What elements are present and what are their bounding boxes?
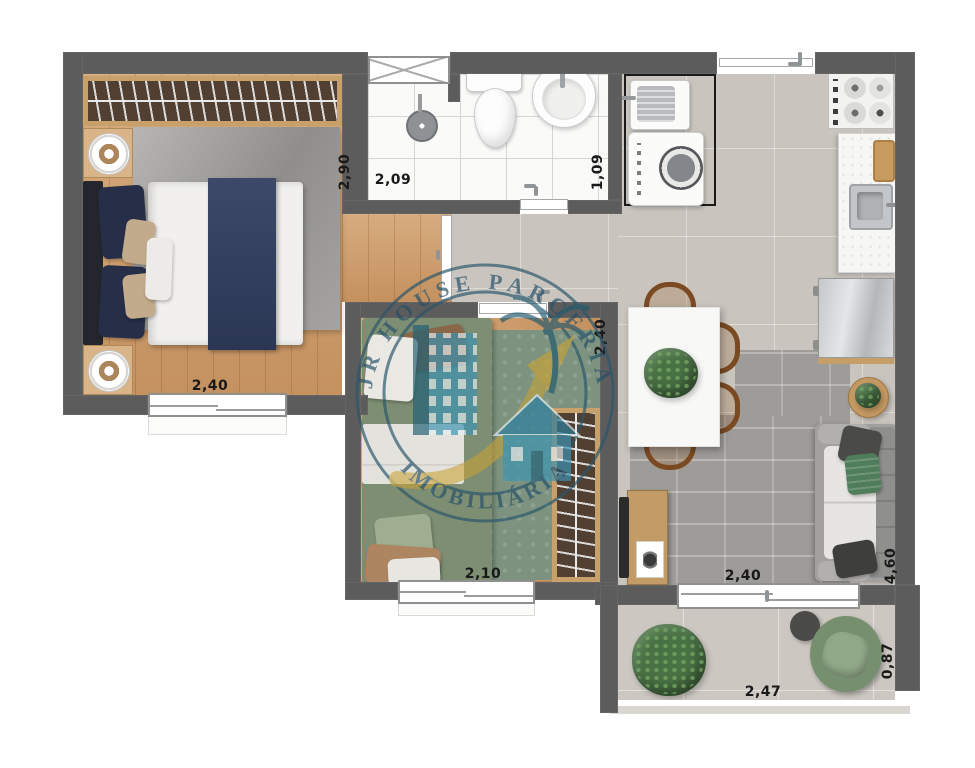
balcony-railing-bottom <box>614 700 896 704</box>
armchair-cushion <box>818 628 874 682</box>
sliding-door-pane2 <box>767 599 858 601</box>
wall-top-b <box>450 52 717 74</box>
kitchen-sink <box>849 184 893 230</box>
cooktop-knobs <box>833 79 838 125</box>
bed2-window-pane <box>400 591 466 593</box>
building-icon <box>413 325 477 435</box>
sofa-pillow-green <box>844 452 882 495</box>
balcony-armchair <box>810 616 882 692</box>
cooktop <box>828 72 894 129</box>
fridge-hinge-bottom <box>813 340 819 350</box>
dim-bedroom2-width: 2,10 <box>458 566 508 582</box>
realty-watermark-logo: JR HOUSE PARCERIA IMOBILIÁRIA <box>335 243 635 543</box>
dim-bathroom-depth: 1,09 <box>590 152 606 192</box>
bed2-window <box>398 580 535 604</box>
wall-left <box>63 52 83 415</box>
lamp-bottom <box>88 350 130 392</box>
sofa-pillow-dark-bottom <box>831 539 878 580</box>
burner-3 <box>844 102 866 124</box>
laundry-faucet <box>620 96 636 100</box>
laundry-tank <box>630 80 690 130</box>
wall-bath-bottom-a <box>342 200 520 214</box>
washer-door <box>659 146 703 190</box>
balcony-outer-shadow <box>610 706 910 714</box>
laundry-tank-basin <box>637 86 675 122</box>
washing-machine <box>628 132 704 206</box>
kitchen-sink-basin <box>857 192 883 220</box>
wall-right <box>895 52 915 585</box>
floor-plan: 2,40 2,90 2,09 1,09 2,40 2,10 2,40 4,60 … <box>0 0 975 768</box>
balcony-plant <box>632 624 706 696</box>
bathroom-door-handle-icon <box>524 184 542 198</box>
dim-bathroom-width: 2,09 <box>370 172 416 188</box>
bathroom-window-cross1 <box>368 58 450 84</box>
burner-1 <box>844 77 866 99</box>
bed1-window <box>148 393 287 417</box>
wall-living-bottom-b <box>860 585 895 605</box>
wall-bed1-bottom-a <box>63 395 148 415</box>
bed2-window-pane2 <box>464 595 533 597</box>
wall-balcony-right <box>895 585 920 691</box>
burner-4 <box>869 102 891 124</box>
wall-balcony-left <box>600 585 618 713</box>
cutting-board <box>873 140 895 182</box>
entry-door-handle-icon <box>788 52 808 70</box>
rack-picture-frame <box>636 541 664 578</box>
dining-centerpiece-plant <box>644 348 698 398</box>
fridge-base-shelf <box>818 358 894 364</box>
bed1-pillow-white <box>145 238 173 301</box>
dim-bedroom1-width: 2,40 <box>185 378 235 394</box>
watermark-arc-top-text: JR HOUSE PARCERIA <box>352 269 619 391</box>
shower-head-icon <box>406 110 438 142</box>
picture-art <box>643 551 657 569</box>
sliding-door-pane <box>681 593 773 595</box>
wall-bath-bottom-b <box>568 200 622 214</box>
wardrobe-rail <box>88 100 337 102</box>
bedroom1-wardrobe <box>83 76 342 126</box>
wall-bed1-bath <box>342 74 368 214</box>
dim-bedroom1-depth: 2,90 <box>337 152 353 192</box>
bathroom-window-cross2 <box>368 56 450 82</box>
bathroom-door-leaf <box>520 199 568 210</box>
washer-controls <box>637 143 641 195</box>
fridge-hinge-top <box>813 286 819 296</box>
dim-living-width: 2,40 <box>715 568 771 584</box>
side-table-plant <box>855 383 881 408</box>
dim-living-depth: 4,60 <box>883 546 899 586</box>
bed1-window-pane2 <box>216 409 285 411</box>
dim-balcony-depth: 0,87 <box>880 641 896 681</box>
fridge <box>818 278 894 358</box>
shower-arm <box>418 94 422 112</box>
dim-balcony-width: 2,47 <box>735 684 791 700</box>
wall-bath-laundry <box>608 74 622 200</box>
lamp-top <box>88 133 130 175</box>
sliding-door-handle <box>765 590 769 602</box>
bed1-window-pane <box>150 405 218 407</box>
balcony-sliding-door <box>677 583 860 609</box>
bed1-runner <box>208 178 276 350</box>
wall-top-a <box>63 52 368 74</box>
wall-bed2-bottom-a <box>345 582 398 600</box>
bathroom-window <box>368 56 450 84</box>
bed1-window-sill <box>148 415 287 435</box>
burner-2 <box>869 77 891 99</box>
